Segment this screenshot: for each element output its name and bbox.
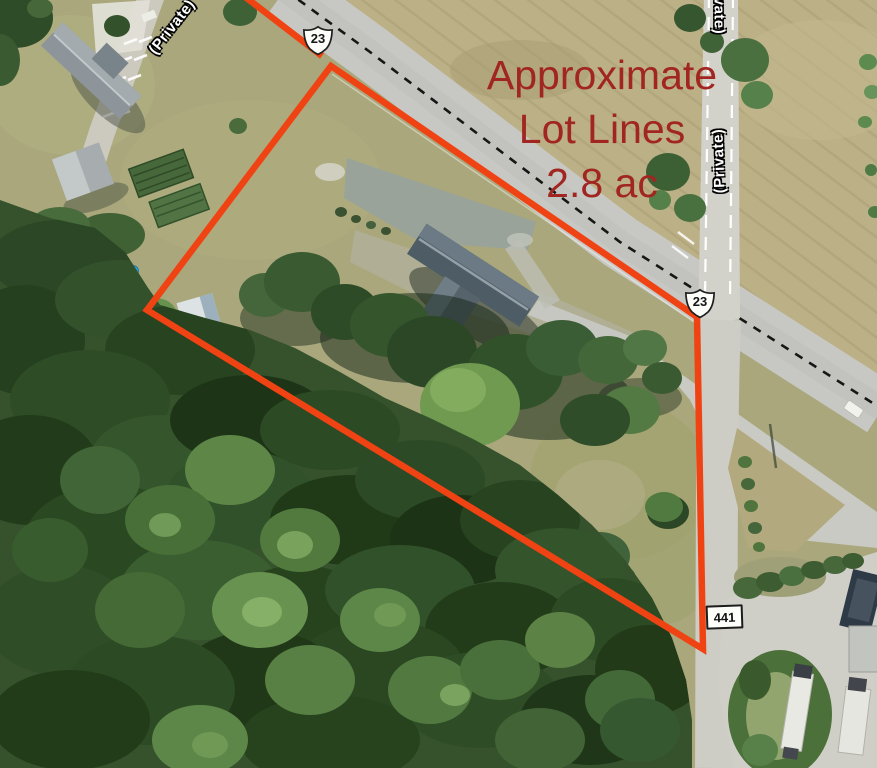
satellite-imagery (0, 0, 877, 768)
aerial-lot-map: Approximate Lot Lines 2.8 ac (Private) (… (0, 0, 877, 768)
building-roof (849, 626, 877, 672)
